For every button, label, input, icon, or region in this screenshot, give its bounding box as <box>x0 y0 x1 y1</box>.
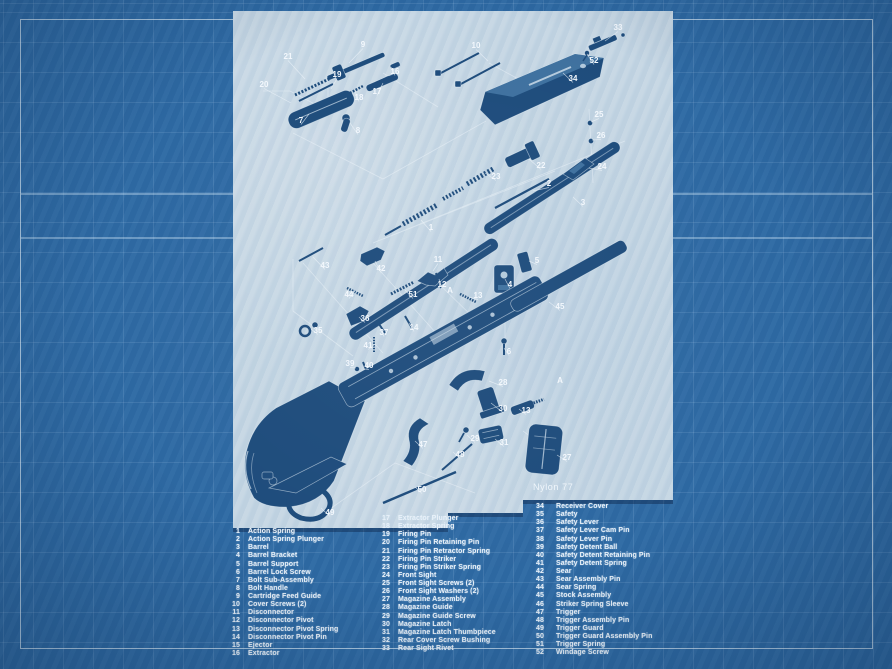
parts-list-item: 49Trigger Guard <box>528 625 652 633</box>
part-name: Firing Pin Striker Spring <box>398 564 481 572</box>
diagram-label: 7 <box>299 116 304 125</box>
part-number: 5 <box>224 561 240 569</box>
part-name: Barrel Lock Screw <box>248 569 311 577</box>
part-number: 12 <box>224 617 240 625</box>
parts-list-column-2: 17Extractor Plunger18Extractor Spring19F… <box>374 515 496 653</box>
part-name: Front Sight <box>398 572 436 580</box>
part-name: Rear Cover Screw Bushing <box>398 637 490 645</box>
diagram-label: 24 <box>598 162 607 171</box>
diagram-label: 16 <box>391 67 400 76</box>
parts-list-item: 6Barrel Lock Screw <box>224 569 338 577</box>
parts-list-item: 8Bolt Handle <box>224 585 338 593</box>
part-number: 47 <box>528 609 544 617</box>
part-number: 29 <box>374 613 390 621</box>
parts-list-item: 52Windage Screw <box>528 649 652 657</box>
part-name: Firing Pin Retractor Spring <box>398 548 490 556</box>
part-name: Striker Spring Sleeve <box>556 601 629 609</box>
part-number: 7 <box>224 577 240 585</box>
parts-list-item: 47Trigger <box>528 609 652 617</box>
diagram-label: 44 <box>345 290 354 299</box>
diagram-label: 5 <box>535 256 540 265</box>
part-name: Trigger <box>556 609 580 617</box>
diagram-label: 12 <box>438 280 447 289</box>
parts-list-item: 28Magazine Guide <box>374 604 496 612</box>
diagram-label: A <box>557 376 563 385</box>
part-name: Safety Detent Spring <box>556 560 627 568</box>
diagram-label: 19 <box>333 70 342 79</box>
part-name: Magazine Latch Thumbpiece <box>398 629 496 637</box>
part-name: Trigger Guard <box>556 625 604 633</box>
diagram-label: 6 <box>507 347 512 356</box>
part-number: 16 <box>224 650 240 658</box>
parts-list-item: 34Receiver Cover <box>528 503 652 511</box>
part-number: 28 <box>374 604 390 612</box>
part-number: 46 <box>528 601 544 609</box>
part-name: Extractor <box>248 650 280 658</box>
part-name: Safety Lever Pin <box>556 536 612 544</box>
parts-list-item: 24Front Sight <box>374 572 496 580</box>
parts-list-item: 15Ejector <box>224 642 338 650</box>
parts-list-item: 23Firing Pin Striker Spring <box>374 564 496 572</box>
diagram-label: 34 <box>569 74 578 83</box>
parts-list-item: 40Safety Detent Retaining Pin <box>528 552 652 560</box>
part-number: 15 <box>224 642 240 650</box>
parts-list-item: 25Front Sight Screws (2) <box>374 580 496 588</box>
parts-list-item: 30Magazine Latch <box>374 621 496 629</box>
part-number: 33 <box>374 645 390 653</box>
part-number: 14 <box>224 634 240 642</box>
diagram-label: 13 <box>474 291 483 300</box>
parts-list-item: 17Extractor Plunger <box>374 515 496 523</box>
diagram-label: 41 <box>364 341 373 350</box>
part-number: 42 <box>528 568 544 576</box>
diagram-label: 52 <box>590 56 599 65</box>
part-name: Firing Pin Striker <box>398 556 456 564</box>
diagram-title: Nylon 77 <box>533 482 573 492</box>
parts-list-item: 45Stock Assembly <box>528 592 652 600</box>
diagram-label: 27 <box>563 453 572 462</box>
part-number: 34 <box>528 503 544 511</box>
parts-list-item: 13Disconnector Pivot Spring <box>224 626 338 634</box>
diagram-label: 2 <box>547 179 552 188</box>
diagram-label: 1 <box>429 223 434 232</box>
parts-list-item: 14Disconnector Pivot Pin <box>224 634 338 642</box>
part-number: 50 <box>528 633 544 641</box>
diagram-label: 42 <box>377 264 386 273</box>
parts-list-item: 7Bolt Sub-Assembly <box>224 577 338 585</box>
part-number: 32 <box>374 637 390 645</box>
part-name: Receiver Cover <box>556 503 608 511</box>
part-number: 17 <box>374 515 390 523</box>
part-name: Disconnector Pivot <box>248 617 314 625</box>
part-name: Stock Assembly <box>556 592 611 600</box>
parts-list-item: 50Trigger Guard Assembly Pin <box>528 633 652 641</box>
part-name: Barrel Support <box>248 561 298 569</box>
part-name: Magazine Guide Screw <box>398 613 476 621</box>
parts-list-item: 20Firing Pin Retaining Pin <box>374 539 496 547</box>
part-name: Safety Lever Cam Pin <box>556 527 630 535</box>
part-number: 31 <box>374 629 390 637</box>
label-leader-line <box>288 61 305 80</box>
diagram-label: 17 <box>373 87 382 96</box>
diagram-label: 11 <box>434 255 443 264</box>
diagram-label: 25 <box>595 110 604 119</box>
part-number: 38 <box>528 536 544 544</box>
parts-list-item: 12Disconnector Pivot <box>224 617 338 625</box>
parts-list-item: 2Action Spring Plunger <box>224 536 338 544</box>
part-number: 37 <box>528 527 544 535</box>
part-number: 13 <box>224 626 240 634</box>
part-number: 41 <box>528 560 544 568</box>
parts-list-item: 29Magazine Guide Screw <box>374 613 496 621</box>
parts-list-item: 5Barrel Support <box>224 561 338 569</box>
parts-list-item: 37Safety Lever Cam Pin <box>528 527 652 535</box>
diagram-label: A <box>447 286 453 295</box>
diagram-label: 48 <box>456 450 465 459</box>
parts-list-column-3: 34Receiver Cover35Safety36Safety Lever37… <box>528 503 652 657</box>
part-name: Sear <box>556 568 572 576</box>
parts-list-item: 22Firing Pin Striker <box>374 556 496 564</box>
parts-list-item: 42Sear <box>528 568 652 576</box>
part-number: 24 <box>374 572 390 580</box>
label-leader-line <box>591 119 599 123</box>
parts-list-item: 48Trigger Assembly Pin <box>528 617 652 625</box>
diagram-label: 35 <box>314 326 323 335</box>
diagram-label: 40 <box>365 361 374 370</box>
diagram-label: 36 <box>361 314 370 323</box>
parts-list-item: 38Safety Lever Pin <box>528 536 652 544</box>
diagram-label: 23 <box>492 172 501 181</box>
label-leader-line <box>349 49 363 64</box>
diagram-label: 29 <box>471 434 480 443</box>
diagram-label: 45 <box>556 302 565 311</box>
part-name: Action Spring <box>248 528 295 536</box>
part-name: Disconnector Pivot Pin <box>248 634 327 642</box>
parts-list-column-1: 1Action Spring2Action Spring Plunger3Bar… <box>224 528 338 658</box>
diagram-label: 37 <box>380 328 389 337</box>
part-name: Front Sight Screws (2) <box>398 580 475 588</box>
diagram-label: 8 <box>356 126 361 135</box>
diagram-label: 4 <box>508 280 513 289</box>
part-number: 6 <box>224 569 240 577</box>
exploded-diagram: 9211920161718781033523425262422232135413… <box>233 11 673 528</box>
diagram-label: 43 <box>321 261 330 270</box>
diagram-label: 21 <box>284 52 293 61</box>
parts-list-item: 32Rear Cover Screw Bushing <box>374 637 496 645</box>
part-name: Rear Sight Rivet <box>398 645 454 653</box>
part-name: Windage Screw <box>556 649 609 657</box>
part-number: 8 <box>224 585 240 593</box>
label-leader-line <box>476 50 488 62</box>
exploded-diagram-paper: 9211920161718781033523425262422232135413… <box>233 11 673 528</box>
part-name: Magazine Latch <box>398 621 452 629</box>
diagram-label: 13 <box>522 406 531 415</box>
parts-list-item: 39Safety Detent Ball <box>528 544 652 552</box>
part-name: Disconnector Pivot Spring <box>248 626 338 634</box>
parts-list-item: 18Extractor Spring <box>374 523 496 531</box>
diagram-label: 9 <box>361 40 366 49</box>
part-number: 48 <box>528 617 544 625</box>
part-number: 22 <box>374 556 390 564</box>
diagram-label: 33 <box>614 23 623 32</box>
parts-list-item: 1Action Spring <box>224 528 338 536</box>
part-number: 20 <box>374 539 390 547</box>
part-number: 40 <box>528 552 544 560</box>
parts-list-item: 31Magazine Latch Thumbpiece <box>374 629 496 637</box>
part-name: Cartridge Feed Guide <box>248 593 321 601</box>
parts-list-item: 41Safety Detent Spring <box>528 560 652 568</box>
part-name: Ejector <box>248 642 272 650</box>
part-number: 45 <box>528 592 544 600</box>
diagram-label: 20 <box>260 80 269 89</box>
label-leader-line <box>433 264 438 272</box>
parts-list-item: 4Barrel Bracket <box>224 552 338 560</box>
diagram-label: 39 <box>346 359 355 368</box>
diagram-label: 30 <box>499 404 508 413</box>
part-name: Barrel Bracket <box>248 552 297 560</box>
part-name: Extractor Plunger <box>398 515 458 523</box>
part-number: 21 <box>374 548 390 556</box>
part-name: Trigger Guard Assembly Pin <box>556 633 652 641</box>
diagram-label: 18 <box>355 93 364 102</box>
part-name: Magazine Guide <box>398 604 453 612</box>
parts-list-item: 46Striker Spring Sleeve <box>528 601 652 609</box>
diagram-label: 47 <box>419 440 428 449</box>
blueprint-screen: 9211920161718781033523425262422232135413… <box>0 0 892 669</box>
diagram-label: 28 <box>499 378 508 387</box>
part-number: 9 <box>224 593 240 601</box>
part-number: 39 <box>528 544 544 552</box>
diagram-label: 31 <box>500 438 509 447</box>
diagram-label: 51 <box>409 290 418 299</box>
part-number: 4 <box>224 552 240 560</box>
diagram-label: 10 <box>472 41 481 50</box>
parts-list-item: 21Firing Pin Retractor Spring <box>374 548 496 556</box>
diagram-label: 49 <box>326 508 335 517</box>
part-number: 30 <box>374 621 390 629</box>
parts-list-item: 33Rear Sight Rivet <box>374 645 496 653</box>
part-name: Bolt Handle <box>248 585 288 593</box>
part-name: Bolt Sub-Assembly <box>248 577 314 585</box>
part-number: 49 <box>528 625 544 633</box>
parts-list-item: 16Extractor <box>224 650 338 658</box>
part-name: Firing Pin Retaining Pin <box>398 539 479 547</box>
diagram-label: 26 <box>597 131 606 140</box>
striker-spring-parts <box>385 140 549 235</box>
diagram-label: 50 <box>418 485 427 494</box>
diagram-label: 3 <box>581 198 586 207</box>
diagram-label: 22 <box>537 161 546 170</box>
part-name: Safety Detent Retaining Pin <box>556 552 650 560</box>
diagram-label: 14 <box>410 323 419 332</box>
part-number: 52 <box>528 649 544 657</box>
parts-list-item: 9Cartridge Feed Guide <box>224 593 338 601</box>
part-number: 1 <box>224 528 240 536</box>
part-number: 23 <box>374 564 390 572</box>
part-number: 25 <box>374 580 390 588</box>
part-name: Trigger Assembly Pin <box>556 617 629 625</box>
part-name: Safety Detent Ball <box>556 544 617 552</box>
